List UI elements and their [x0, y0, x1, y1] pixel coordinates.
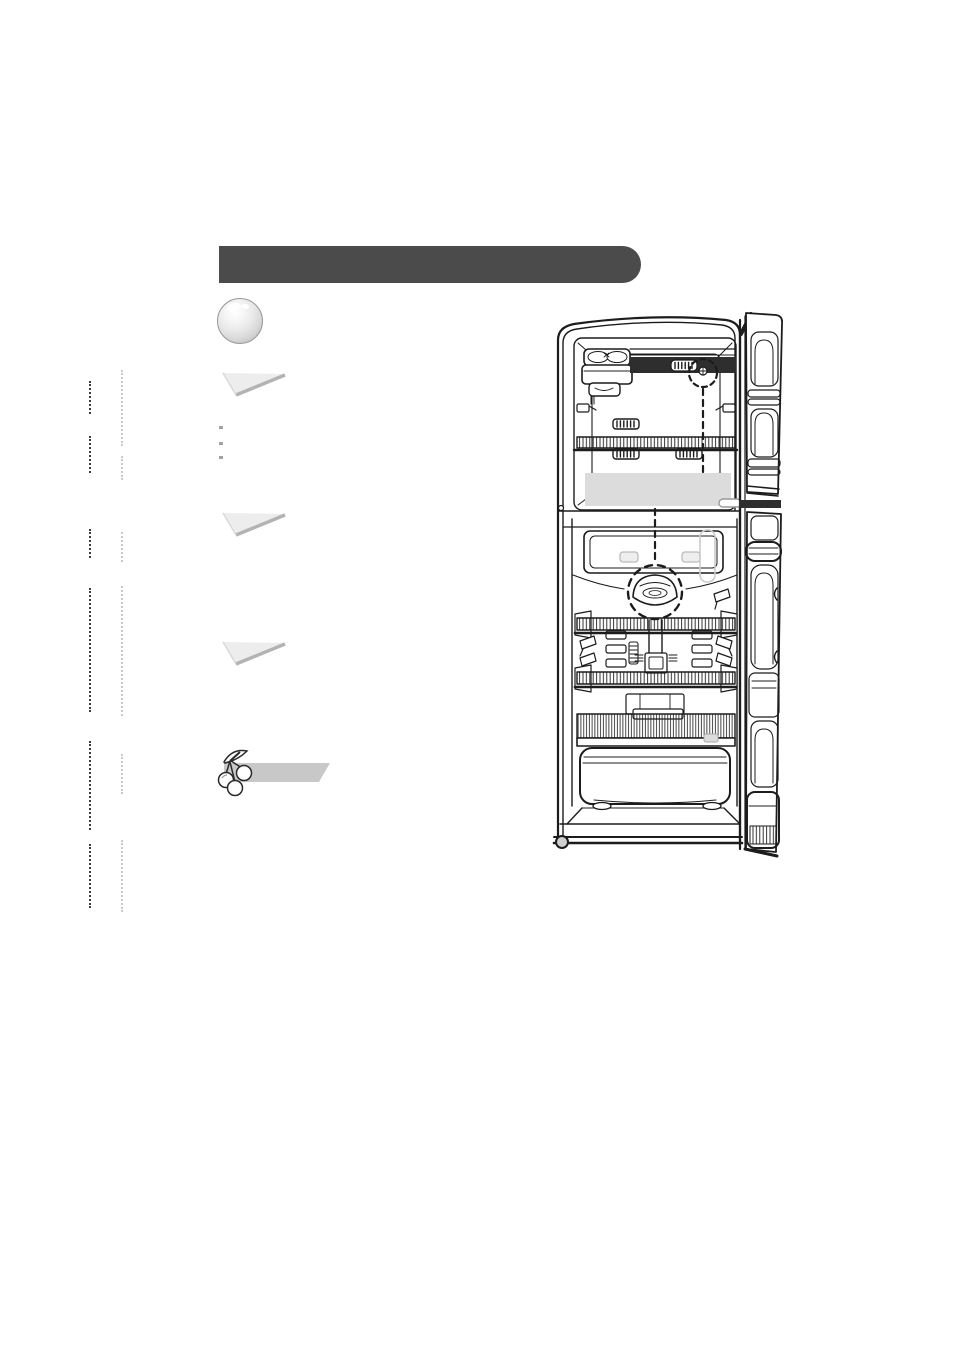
- door-hinge-band: [739, 500, 781, 508]
- triangle-wedge-icon: [222, 511, 288, 537]
- chiller-panel: [584, 530, 723, 582]
- text-remnant-marks: [89, 844, 91, 908]
- cherries-icon: [216, 740, 260, 798]
- list-bullet-remnant: [219, 426, 223, 429]
- section-title-bar: [219, 246, 641, 283]
- crisper-drawer: [580, 748, 730, 810]
- right-wall-clip: [714, 589, 730, 609]
- open-door: [739, 313, 782, 856]
- ice-maker: [582, 349, 632, 404]
- text-remnant-marks: [121, 370, 123, 446]
- roller-foot: [556, 836, 568, 848]
- glossy-sphere-icon: [217, 298, 263, 344]
- triangle-wedge-icon: [222, 371, 288, 397]
- redacted-label-band: [585, 473, 731, 506]
- manual-page: [0, 0, 954, 1348]
- freezer-wire-shelf: [574, 437, 737, 450]
- text-remnant-marks: [89, 381, 91, 414]
- text-remnant-marks: [89, 588, 91, 712]
- text-remnant-marks: [121, 456, 123, 480]
- refrigerator-diagram: [548, 304, 790, 870]
- fridge-compartment: [572, 509, 737, 810]
- freezer-door: [746, 313, 782, 496]
- list-bullet-remnant: [219, 442, 223, 445]
- text-remnant-marks: [121, 754, 123, 794]
- wire-shelf-upper: [575, 611, 737, 638]
- back-wall-slots: [606, 631, 712, 667]
- fridge-door: [745, 512, 781, 856]
- text-remnant-marks: [121, 586, 123, 716]
- list-bullet-remnant: [219, 456, 223, 459]
- text-remnant-marks: [121, 840, 123, 912]
- text-remnant-marks: [89, 741, 91, 830]
- triangle-wedge-icon: [222, 640, 288, 666]
- freezer-wall-clips: [577, 404, 735, 412]
- text-remnant-marks: [89, 529, 91, 558]
- crisper-cover: [577, 709, 735, 746]
- text-remnant-marks: [121, 532, 123, 562]
- freezer-top-shelf: [630, 349, 736, 373]
- text-remnant-marks: [89, 436, 91, 473]
